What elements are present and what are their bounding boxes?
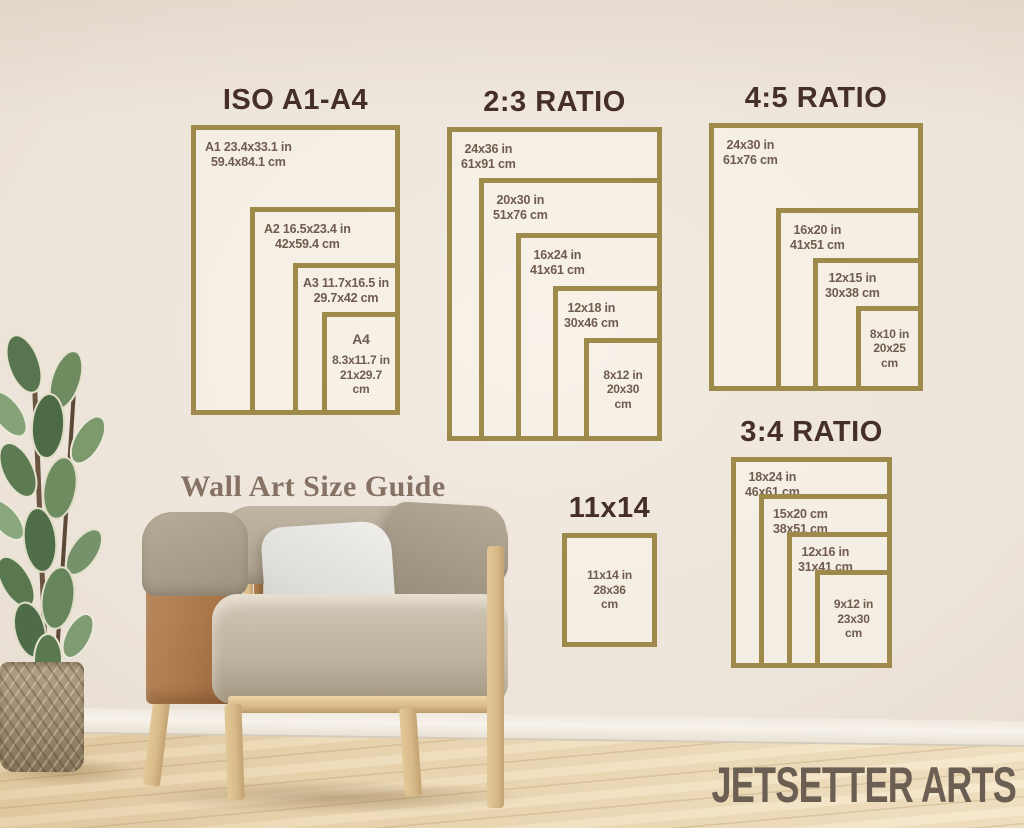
group-title-4-5: 4:5 RATIO: [745, 82, 888, 115]
size-line: cm: [845, 626, 862, 640]
chair-shadow: [140, 780, 530, 814]
size-group-4-5: 4:5 RATIO 24x30 in 61x76 cm 16x20 in 41x…: [709, 123, 923, 391]
frame-8x12: 8x12 in 20x30 cm: [584, 338, 662, 441]
frame-16x20-label: 16x20 in 41x51 cm: [790, 223, 845, 253]
frame-24x30-label: 24x30 in 61x76 cm: [723, 138, 778, 168]
size-line: 28x36: [593, 583, 625, 597]
group-title-iso: ISO A1-A4: [223, 84, 368, 117]
plant-basket: [0, 662, 84, 772]
frame-8x10: 8x10 in 20x25 cm: [856, 306, 923, 391]
frame-20x30-label: 20x30 in 51x76 cm: [493, 193, 548, 223]
chair-front-rail: [228, 696, 504, 713]
frame-a2-label: A2 16.5x23.4 in 42x59.4 cm: [264, 222, 351, 252]
size-line: 21x29.7: [340, 368, 382, 382]
frame-a3-label: A3 11.7x16.5 in 29.7x42 cm: [303, 276, 389, 306]
frame-a4-label: A4 8.3x11.7 in 21x29.7 cm: [327, 317, 395, 410]
group-title-2-3: 2:3 RATIO: [483, 86, 626, 119]
size-line: 24x30 in: [723, 138, 778, 153]
size-line: 61x76 cm: [723, 153, 778, 168]
brand-logo: JETSETTER ARTS: [711, 756, 1016, 814]
size-line: cm: [601, 597, 618, 611]
armchair: [140, 498, 520, 808]
frame-9x12: 9x12 in 23x30 cm: [815, 570, 892, 668]
frame-16x24-label: 16x24 in 41x61 cm: [530, 248, 585, 278]
size-line: 24x36 in: [461, 142, 516, 157]
size-line: cm: [353, 382, 370, 396]
size-line: 9x12 in: [834, 597, 873, 611]
size-line: 20x25: [873, 341, 905, 355]
frame-12x18-label: 12x18 in 30x46 cm: [564, 301, 619, 331]
size-group-iso: ISO A1-A4 A1 23.4x33.1 in 59.4x84.1 cm A…: [191, 125, 400, 415]
size-line: A1 23.4x33.1 in: [205, 140, 292, 155]
chair-arm-cushion: [142, 512, 248, 596]
frame-12x15-label: 12x15 in 30x38 cm: [825, 271, 880, 301]
size-line: 12x18 in: [564, 301, 619, 316]
frame-8x10-label: 8x10 in 20x25 cm: [861, 311, 918, 386]
size-line: 23x30: [837, 612, 869, 626]
chair-seat-cushion: [212, 594, 508, 704]
size-line: 16x20 in: [790, 223, 845, 238]
size-line: 18x24 in: [745, 470, 800, 485]
size-line: 8x10 in: [870, 327, 909, 341]
size-group-2-3: 2:3 RATIO 24x36 in 61x91 cm 20x30 in 51x…: [447, 127, 662, 441]
frame-9x12-label: 9x12 in 23x30 cm: [820, 575, 887, 663]
size-line: cm: [881, 356, 898, 370]
size-line: 8x12 in: [603, 368, 642, 382]
size-line: 29.7x42 cm: [303, 291, 389, 306]
size-line: A2 16.5x23.4 in: [264, 222, 351, 237]
size-line: 12x16 in: [798, 545, 853, 560]
frame-8x12-label: 8x12 in 20x30 cm: [589, 343, 657, 436]
size-group-11x14: 11x14 11x14 in 28x36 cm: [562, 533, 657, 647]
size-line: 8.3x11.7 in: [332, 353, 390, 367]
size-line: cm: [615, 397, 632, 411]
size-line: A4: [352, 331, 370, 348]
size-line: 11x14 in: [587, 568, 632, 582]
size-line: A3 11.7x16.5 in: [303, 276, 389, 291]
frame-24x36-label: 24x36 in 61x91 cm: [461, 142, 516, 172]
size-line: 12x15 in: [825, 271, 880, 286]
chair-post-right: [487, 546, 504, 808]
size-line: 61x91 cm: [461, 157, 516, 172]
frame-11x14-label: 11x14 in 28x36 cm: [567, 538, 652, 642]
size-line: 16x24 in: [530, 248, 585, 263]
group-title-11x14: 11x14: [569, 492, 651, 525]
frame-a4: A4 8.3x11.7 in 21x29.7 cm: [322, 312, 400, 415]
size-line: 20x30: [607, 382, 639, 396]
size-line: 41x51 cm: [790, 238, 845, 253]
size-line: 15x20 cm: [773, 507, 828, 522]
frame-11x14: 11x14 in 28x36 cm: [562, 533, 657, 647]
size-line: 30x46 cm: [564, 316, 619, 331]
frame-a1-label: A1 23.4x33.1 in 59.4x84.1 cm: [205, 140, 292, 170]
chair-leg-front-left: [224, 704, 244, 801]
size-line: 42x59.4 cm: [264, 237, 351, 252]
plant-illustration: [0, 330, 130, 676]
size-line: 30x38 cm: [825, 286, 880, 301]
group-title-3-4: 3:4 RATIO: [740, 416, 883, 449]
size-line: 51x76 cm: [493, 208, 548, 223]
size-group-3-4: 3:4 RATIO 18x24 in 46x61 cm 15x20 cm 38x…: [731, 457, 892, 668]
size-line: 20x30 in: [493, 193, 548, 208]
size-line: 59.4x84.1 cm: [205, 155, 292, 170]
size-line: 41x61 cm: [530, 263, 585, 278]
room-scene: { "scene": { "guide_title": "Wall Art Si…: [0, 0, 1024, 828]
